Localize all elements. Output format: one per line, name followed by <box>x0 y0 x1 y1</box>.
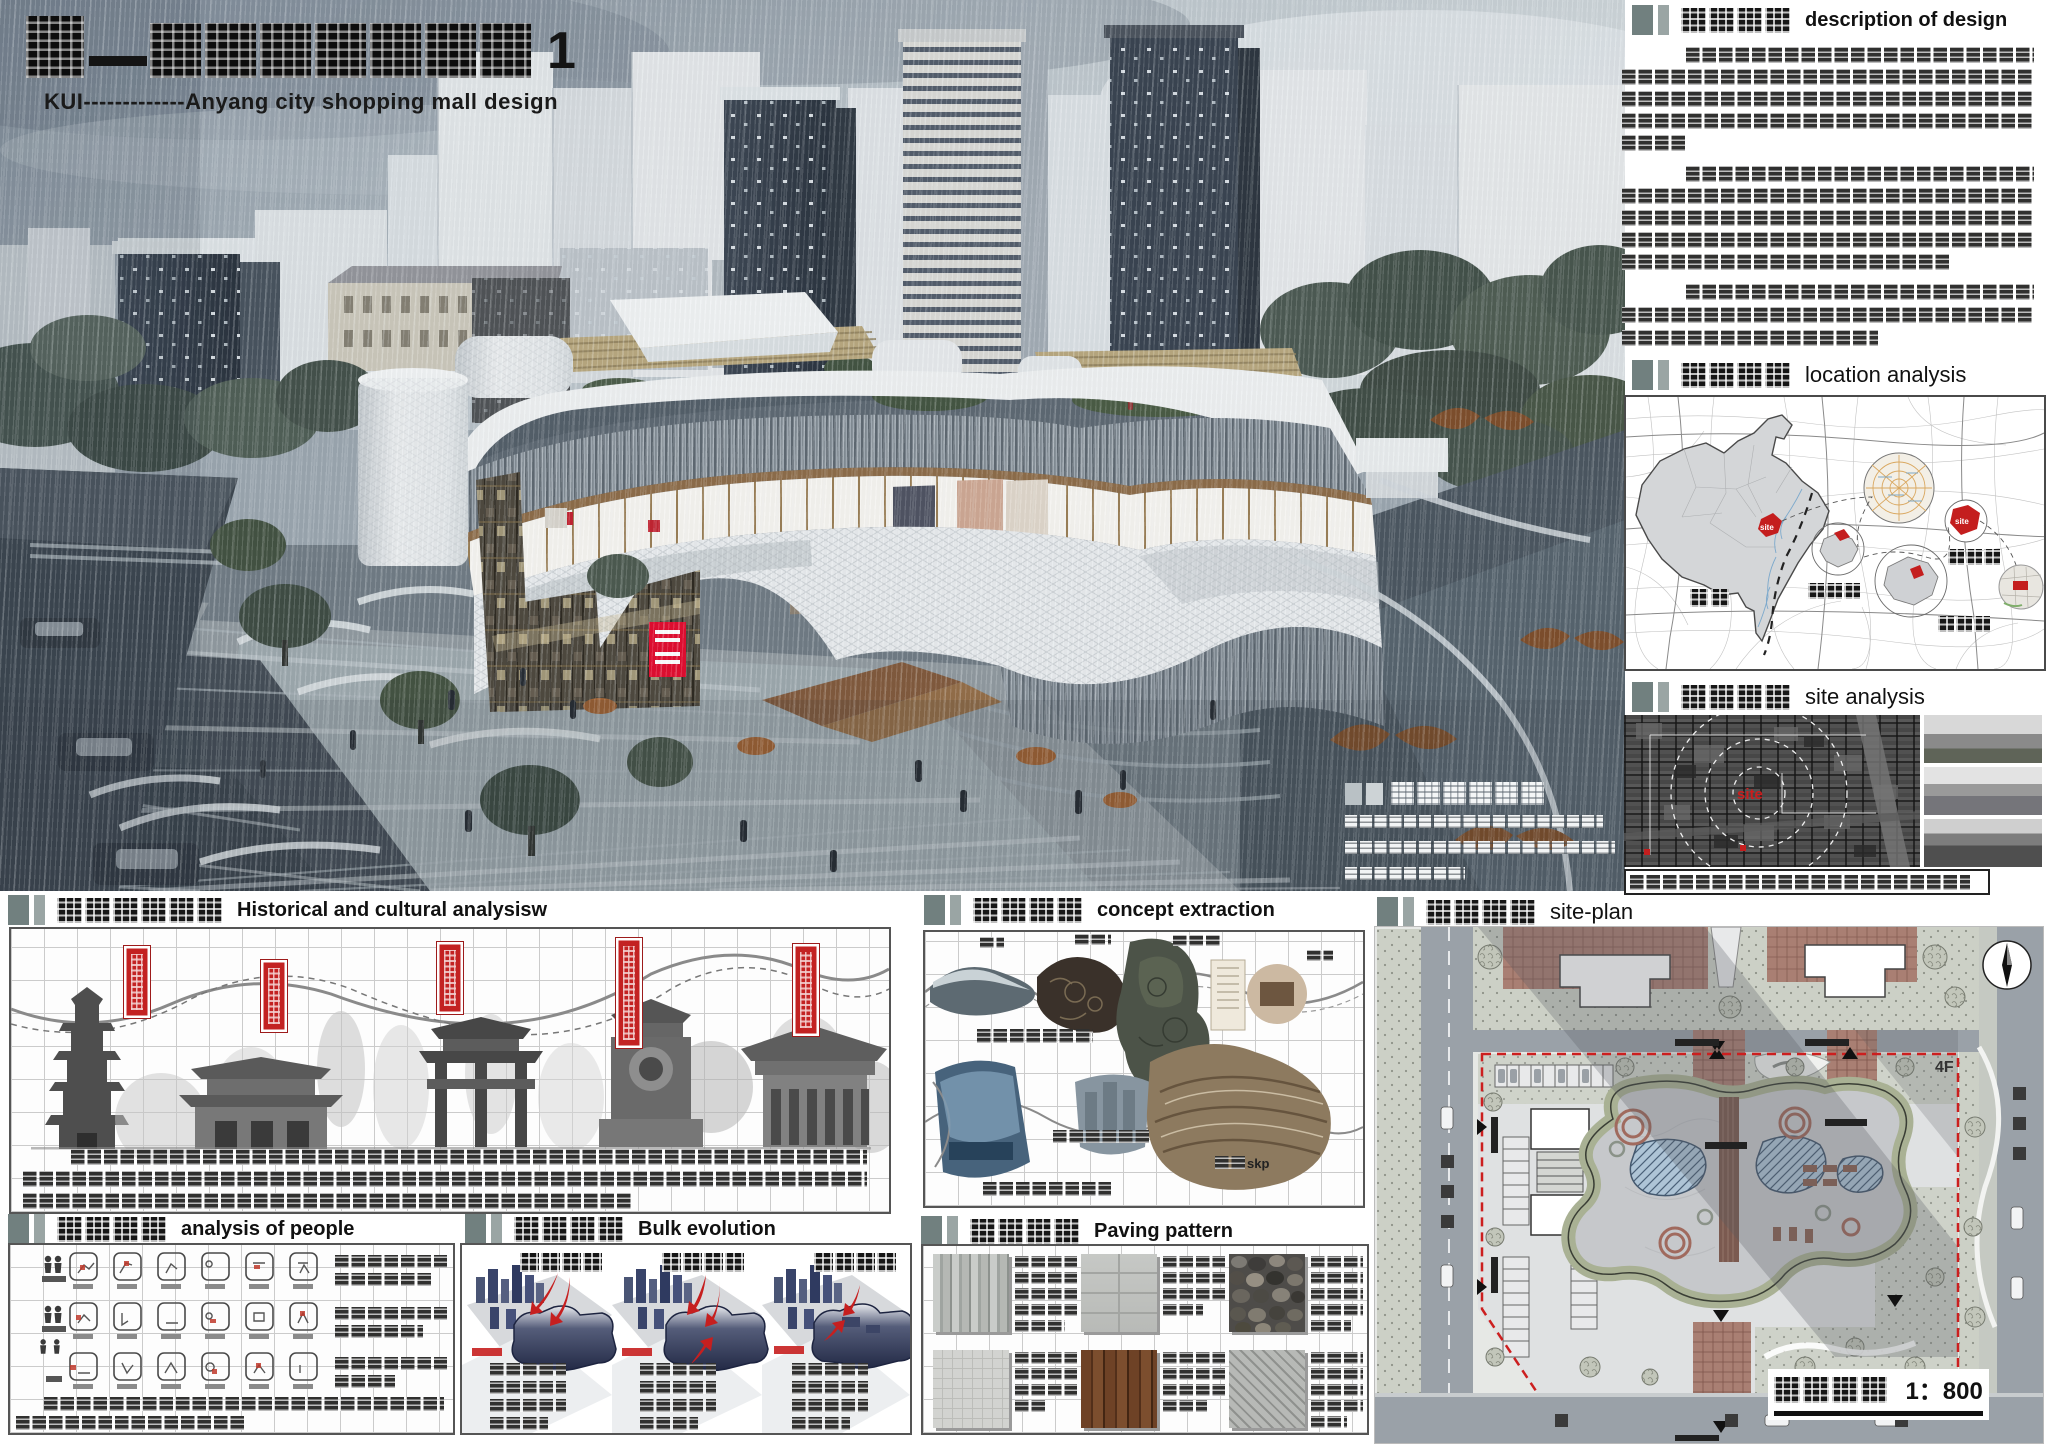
svg-text:site: site <box>1955 517 1969 526</box>
svg-text:site: site <box>1760 523 1774 532</box>
svg-text:site: site <box>1737 786 1763 803</box>
svg-text:4F: 4F <box>1935 1059 1954 1076</box>
